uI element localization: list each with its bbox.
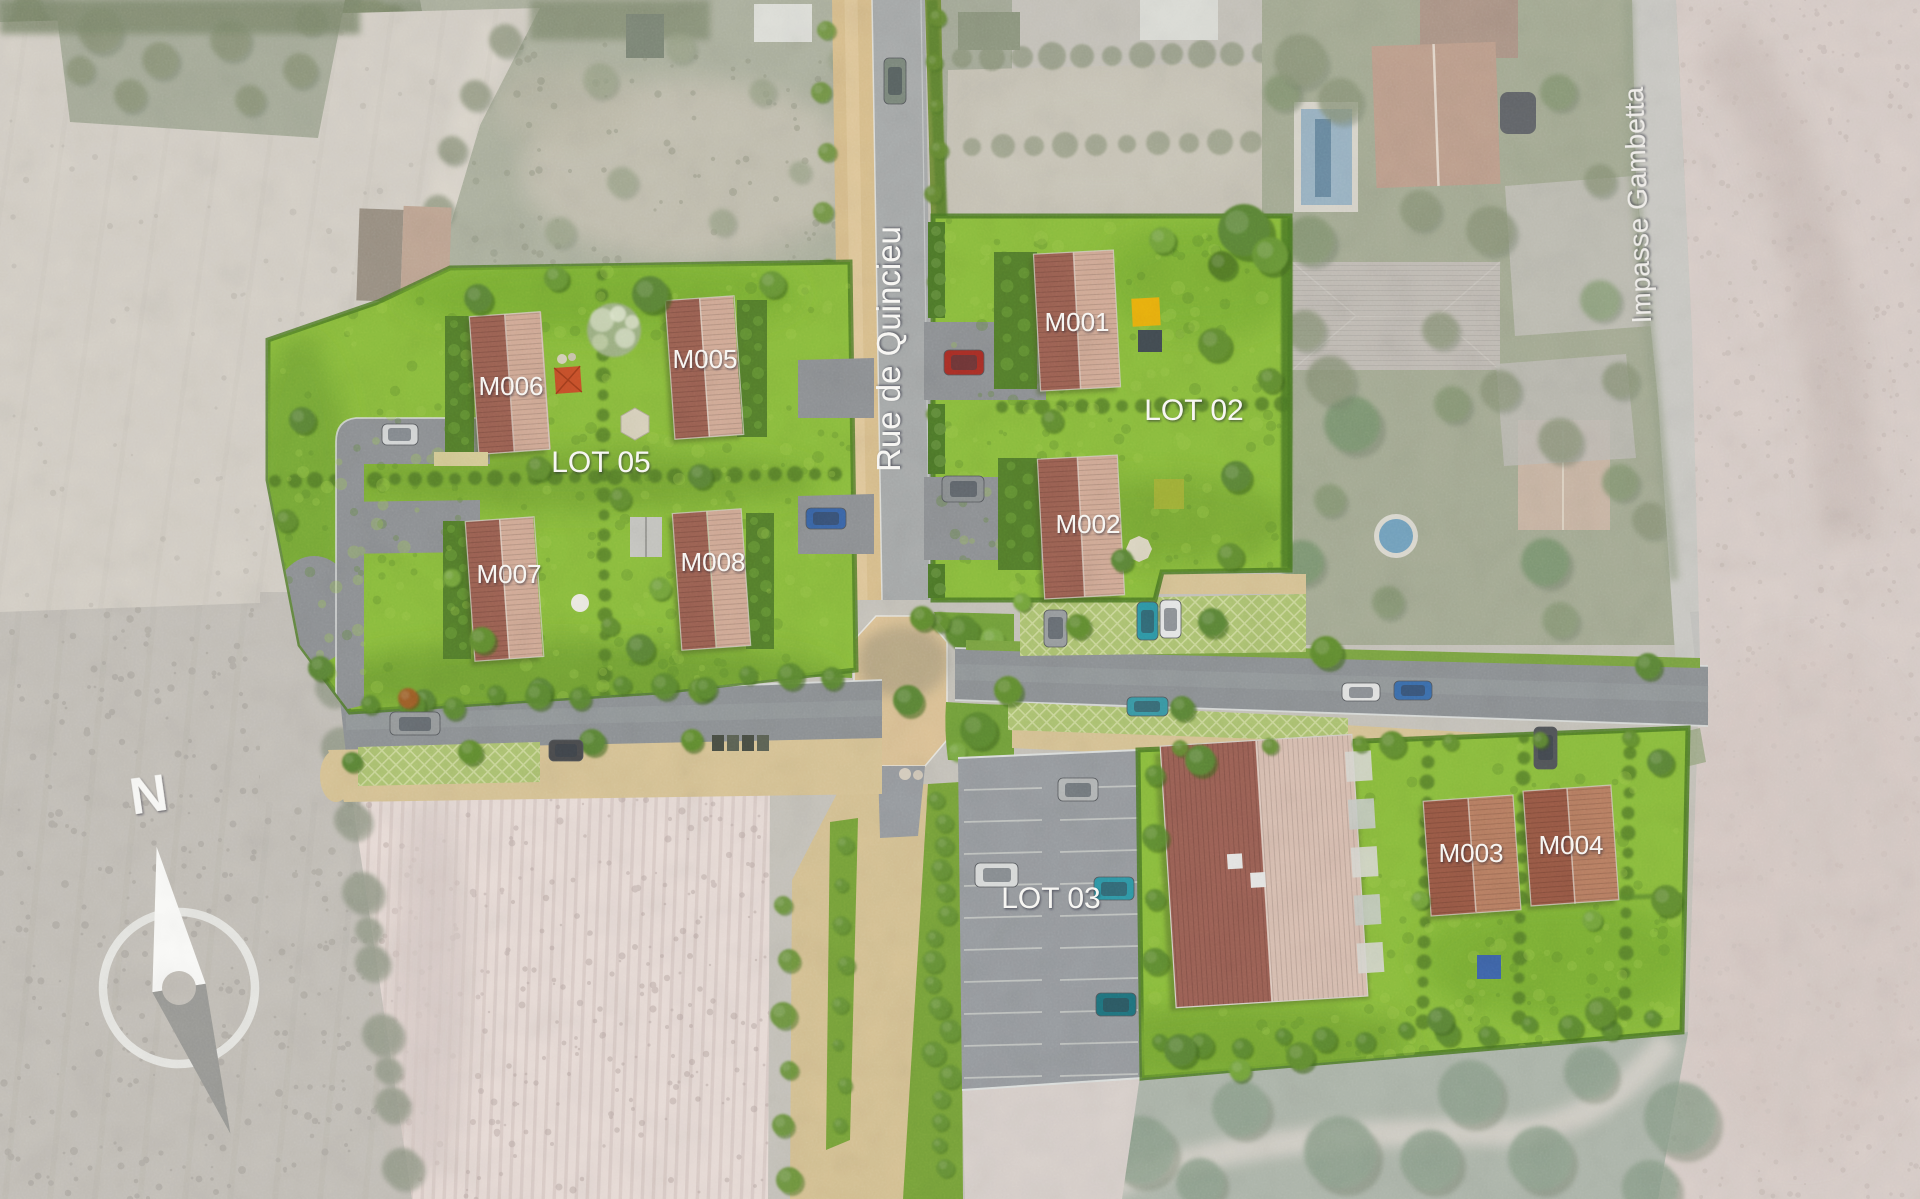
svg-text:M006: M006 xyxy=(478,371,543,401)
svg-text:LOT 03: LOT 03 xyxy=(1001,882,1101,915)
svg-text:M003: M003 xyxy=(1438,838,1503,868)
svg-text:M002: M002 xyxy=(1055,509,1120,539)
svg-text:Rue de Quincieu: Rue de Quincieu xyxy=(870,226,907,472)
svg-text:M001: M001 xyxy=(1044,307,1109,337)
svg-text:M005: M005 xyxy=(672,344,737,374)
svg-text:M004: M004 xyxy=(1538,830,1603,860)
svg-text:M007: M007 xyxy=(476,559,541,589)
svg-text:LOT 05: LOT 05 xyxy=(551,446,651,479)
svg-text:M008: M008 xyxy=(680,547,745,577)
svg-text:LOT 02: LOT 02 xyxy=(1144,394,1244,427)
